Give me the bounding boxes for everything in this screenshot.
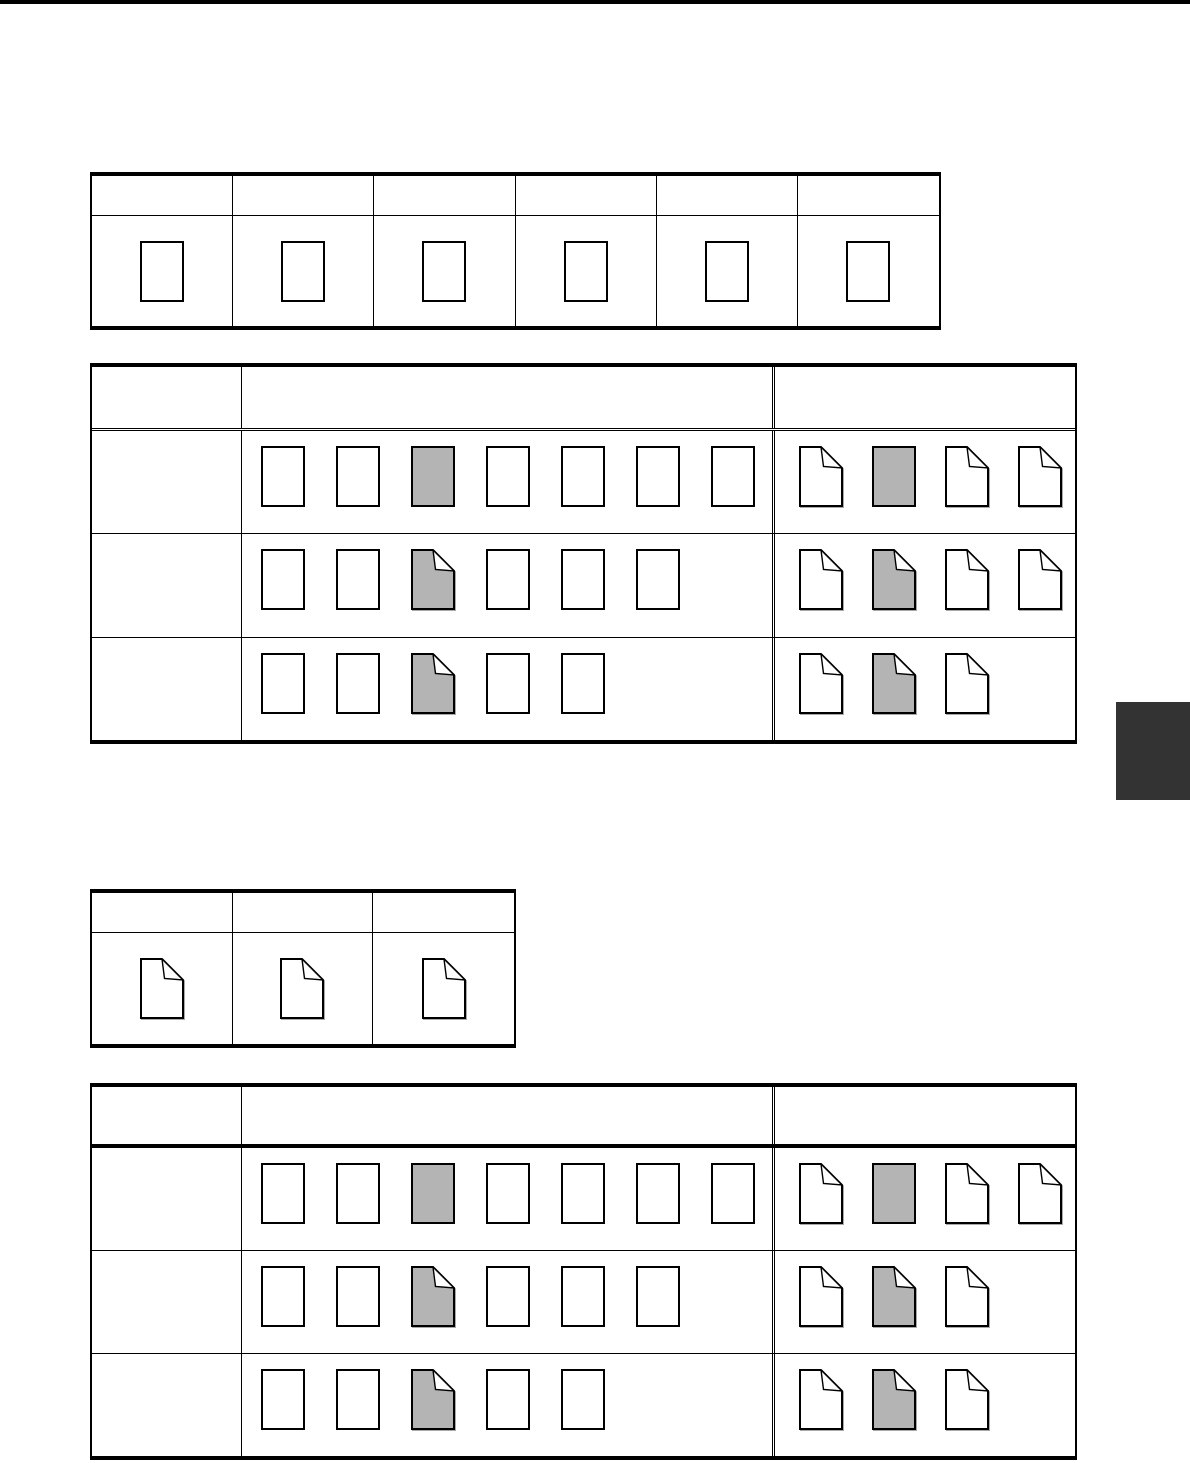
document-icon xyxy=(281,241,325,302)
folded-document-icon xyxy=(945,446,989,507)
icon-cell xyxy=(233,216,374,326)
header-row xyxy=(92,367,1075,431)
header-cell xyxy=(242,1087,772,1144)
row-label-cell xyxy=(92,638,242,740)
right-icons-cell xyxy=(772,1251,1075,1353)
folded-document-icon-gray xyxy=(872,653,916,714)
header-cell xyxy=(657,176,798,216)
folded-document-icon xyxy=(1018,549,1062,610)
document-icon xyxy=(486,1369,530,1430)
folded-document-icon-gray xyxy=(411,1266,455,1327)
table-row xyxy=(92,533,1075,636)
document-icon xyxy=(561,446,605,507)
folded-document-icon xyxy=(799,653,843,714)
document-icon xyxy=(561,1266,605,1327)
document-icon xyxy=(336,1369,380,1430)
folded-document-icon xyxy=(945,1163,989,1224)
document-icon xyxy=(261,1163,305,1224)
right-icons-cell xyxy=(772,1148,1075,1250)
document-icon xyxy=(336,1266,380,1327)
document-size-table-top xyxy=(90,172,941,330)
right-icons-cell xyxy=(772,638,1075,740)
folded-document-icon xyxy=(422,958,466,1019)
document-icon-gray xyxy=(872,1163,916,1224)
left-icons-cell xyxy=(242,431,772,533)
folded-document-icon xyxy=(280,958,324,1019)
header-cell xyxy=(772,367,1075,428)
header-cell xyxy=(374,176,515,216)
document-icon xyxy=(711,446,755,507)
document-icon xyxy=(561,1369,605,1430)
folded-document-icon-gray xyxy=(872,1266,916,1327)
folded-document-icon xyxy=(1018,446,1062,507)
document-icon xyxy=(261,1369,305,1430)
folded-document-icon xyxy=(799,549,843,610)
header-cell xyxy=(516,176,657,216)
document-icon-gray xyxy=(411,446,455,507)
document-icon xyxy=(846,241,890,302)
document-icon xyxy=(261,446,305,507)
document-icon xyxy=(336,549,380,610)
icon-cell xyxy=(374,216,515,326)
left-icons-cell xyxy=(242,1354,772,1456)
right-icons-cell xyxy=(772,534,1075,636)
document-combination-table-upper xyxy=(90,363,1077,744)
document-icon xyxy=(486,1163,530,1224)
folded-document-icon-gray xyxy=(872,549,916,610)
document-icon xyxy=(636,1266,680,1327)
folded-document-icon xyxy=(140,958,184,1019)
document-icon xyxy=(261,549,305,610)
table-row xyxy=(92,431,1075,533)
document-size-table-small xyxy=(90,889,516,1048)
header-row xyxy=(92,1087,1075,1148)
folded-document-icon xyxy=(945,1266,989,1327)
row-label-cell xyxy=(92,1251,242,1353)
right-icons-cell xyxy=(772,1354,1075,1456)
folded-document-icon xyxy=(1018,1163,1062,1224)
folded-document-icon xyxy=(799,1369,843,1430)
table-row xyxy=(92,1353,1075,1456)
header-cell xyxy=(233,893,374,933)
left-icons-cell xyxy=(242,638,772,740)
page-top-rule xyxy=(0,0,1190,4)
table-row xyxy=(92,1148,1075,1250)
table-row xyxy=(92,637,1075,740)
row-label-cell xyxy=(92,1148,242,1250)
document-icon xyxy=(486,446,530,507)
folded-document-icon-gray xyxy=(411,549,455,610)
header-cell xyxy=(92,367,242,428)
right-icons-cell xyxy=(772,431,1075,533)
header-cell xyxy=(92,176,233,216)
icon-cell xyxy=(233,933,374,1044)
document-icon xyxy=(486,1266,530,1327)
folded-document-icon-gray xyxy=(411,653,455,714)
icon-cell xyxy=(92,216,233,326)
chapter-tab xyxy=(1116,702,1190,800)
folded-document-icon xyxy=(945,1369,989,1430)
header-cell xyxy=(772,1087,1075,1144)
document-icon xyxy=(336,1163,380,1224)
header-cell xyxy=(373,893,514,933)
document-icon xyxy=(636,446,680,507)
folded-document-icon xyxy=(945,549,989,610)
header-cell xyxy=(242,367,772,428)
row-label-cell xyxy=(92,1354,242,1456)
document-icon xyxy=(561,653,605,714)
document-icon-gray xyxy=(411,1163,455,1224)
icon-cell xyxy=(92,933,233,1044)
icon-cell xyxy=(798,216,939,326)
document-icon xyxy=(636,1163,680,1224)
document-combination-table-lower xyxy=(90,1083,1077,1460)
left-icons-cell xyxy=(242,534,772,636)
document-icon xyxy=(486,653,530,714)
document-icon xyxy=(261,1266,305,1327)
document-icon xyxy=(140,241,184,302)
left-icons-cell xyxy=(242,1251,772,1353)
icon-cell xyxy=(657,216,798,326)
row-label-cell xyxy=(92,534,242,636)
left-icons-cell xyxy=(242,1148,772,1250)
document-icon xyxy=(561,549,605,610)
folded-document-icon-gray xyxy=(411,1369,455,1430)
document-icon xyxy=(705,241,749,302)
folded-document-icon-gray xyxy=(872,1369,916,1430)
document-icon xyxy=(636,549,680,610)
header-cell xyxy=(798,176,939,216)
row-label-cell xyxy=(92,431,242,533)
header-cell xyxy=(92,893,233,933)
document-icon-gray xyxy=(872,446,916,507)
table-row xyxy=(92,1250,1075,1353)
header-cell xyxy=(92,1087,242,1144)
document-icon xyxy=(422,241,466,302)
document-icon xyxy=(711,1163,755,1224)
folded-document-icon xyxy=(799,446,843,507)
document-icon xyxy=(486,549,530,610)
folded-document-icon xyxy=(945,653,989,714)
icon-cell xyxy=(373,933,514,1044)
document-icon xyxy=(564,241,608,302)
document-icon xyxy=(336,653,380,714)
icon-cell xyxy=(516,216,657,326)
document-icon xyxy=(336,446,380,507)
document-icon xyxy=(561,1163,605,1224)
folded-document-icon xyxy=(799,1163,843,1224)
document-icon xyxy=(261,653,305,714)
manual-page xyxy=(0,0,1190,1463)
header-cell xyxy=(233,176,374,216)
folded-document-icon xyxy=(799,1266,843,1327)
